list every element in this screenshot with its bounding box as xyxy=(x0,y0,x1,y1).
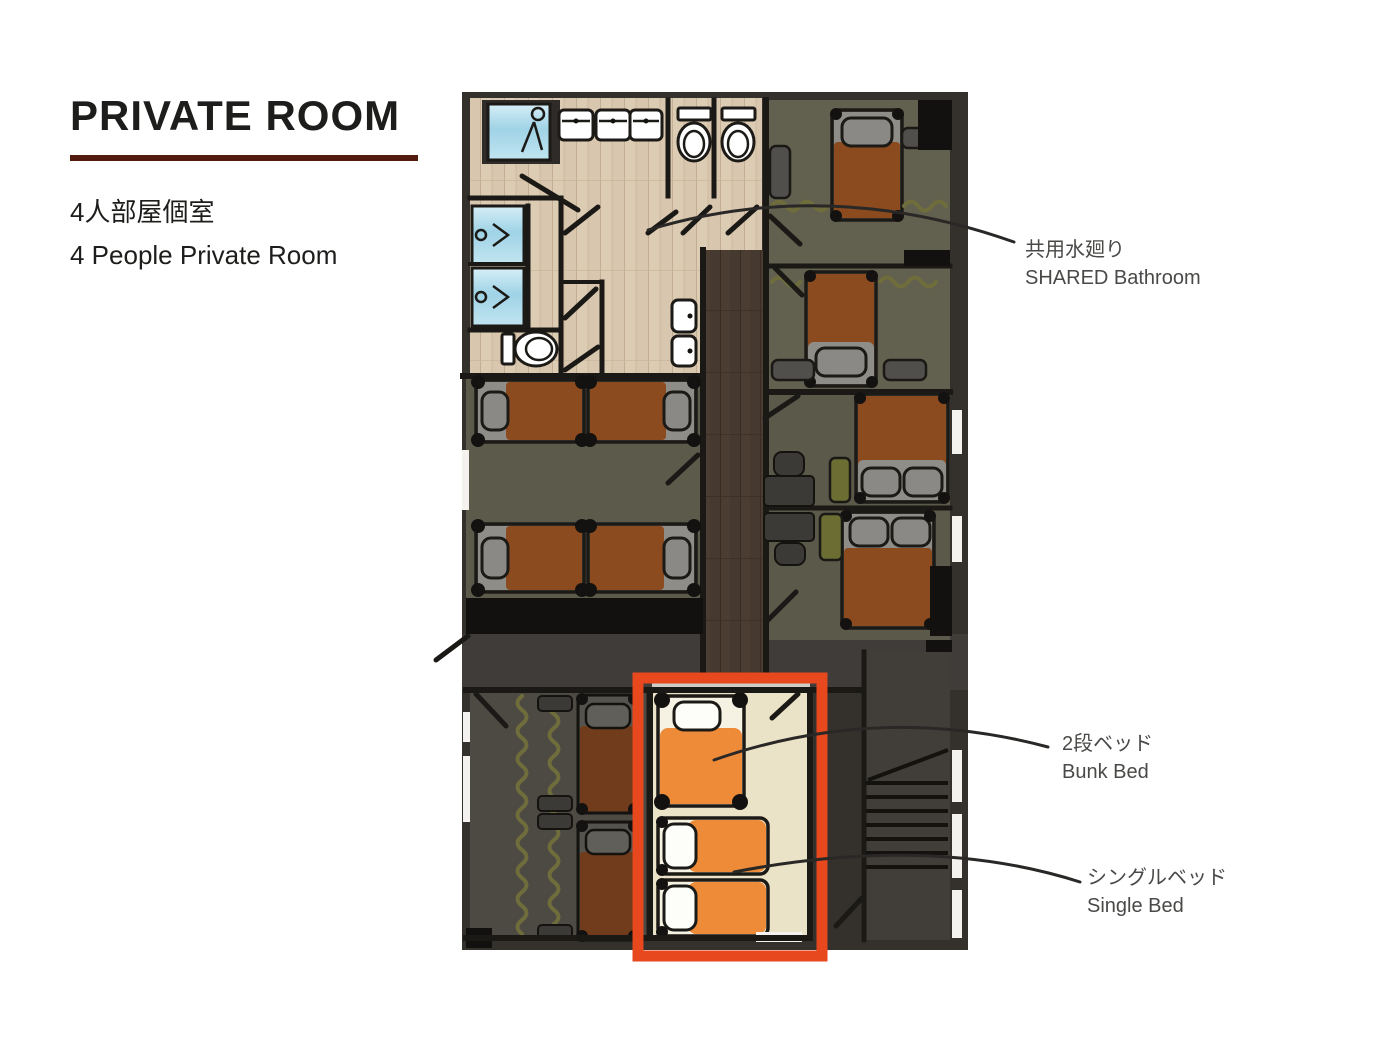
bed xyxy=(830,108,904,222)
washlet-icon xyxy=(672,300,696,332)
wall-block xyxy=(904,250,950,266)
nightstand xyxy=(538,814,572,829)
bed xyxy=(576,693,640,815)
annotation-en: SHARED Bathroom xyxy=(1025,264,1201,292)
corridor xyxy=(703,250,765,686)
bed xyxy=(583,519,701,597)
bed xyxy=(854,392,950,504)
sofa xyxy=(820,514,842,560)
wall-block xyxy=(926,640,952,652)
bed xyxy=(471,519,589,597)
wall-block xyxy=(930,566,952,636)
bed xyxy=(840,510,936,630)
shower-icon xyxy=(482,100,560,164)
window xyxy=(462,450,469,510)
sink-icon xyxy=(596,110,630,140)
window xyxy=(952,750,962,802)
window xyxy=(463,712,470,742)
page: PRIVATE ROOM 4人部屋個室 4 People Private Roo… xyxy=(0,0,1400,1050)
bench xyxy=(772,360,814,380)
bed xyxy=(583,375,701,447)
sink-icon xyxy=(559,110,593,140)
window xyxy=(463,756,470,822)
chair xyxy=(774,452,804,476)
bed xyxy=(576,820,640,942)
annotation-shared-bathroom: 共用水廻り SHARED Bathroom xyxy=(1025,236,1201,292)
nightstand xyxy=(770,146,790,198)
sofa xyxy=(830,458,850,502)
annotation-en: Bunk Bed xyxy=(1062,758,1153,786)
annotation-single-bed: シングルベッド Single Bed xyxy=(1087,864,1227,920)
bed xyxy=(471,375,589,447)
annotation-jp: 共用水廻り xyxy=(1025,236,1201,264)
wall-block xyxy=(466,598,703,634)
chair xyxy=(775,543,805,565)
toilet-icon xyxy=(678,108,711,161)
nightstand xyxy=(538,696,572,711)
annotation-en: Single Bed xyxy=(1087,892,1227,920)
washlet-icon xyxy=(672,336,696,366)
toilet-icon xyxy=(722,108,755,161)
window xyxy=(952,814,962,878)
bunk-bed xyxy=(654,692,748,810)
single-bed xyxy=(656,816,768,876)
bench xyxy=(884,360,926,380)
shower-icon xyxy=(472,268,524,326)
sink-icon xyxy=(630,110,662,140)
shower-icon xyxy=(472,206,524,264)
toilet-icon xyxy=(502,332,557,366)
annotation-bunk-bed: 2段ベッド Bunk Bed xyxy=(1062,730,1153,786)
wall-block xyxy=(918,100,952,150)
single-bed xyxy=(656,878,768,938)
nightstand xyxy=(538,796,572,811)
window xyxy=(952,890,962,938)
annotation-jp: 2段ベッド xyxy=(1062,730,1153,758)
table xyxy=(764,476,814,506)
annotation-jp: シングルベッド xyxy=(1087,864,1227,892)
window xyxy=(952,410,962,454)
table xyxy=(764,513,814,541)
window xyxy=(952,516,962,562)
